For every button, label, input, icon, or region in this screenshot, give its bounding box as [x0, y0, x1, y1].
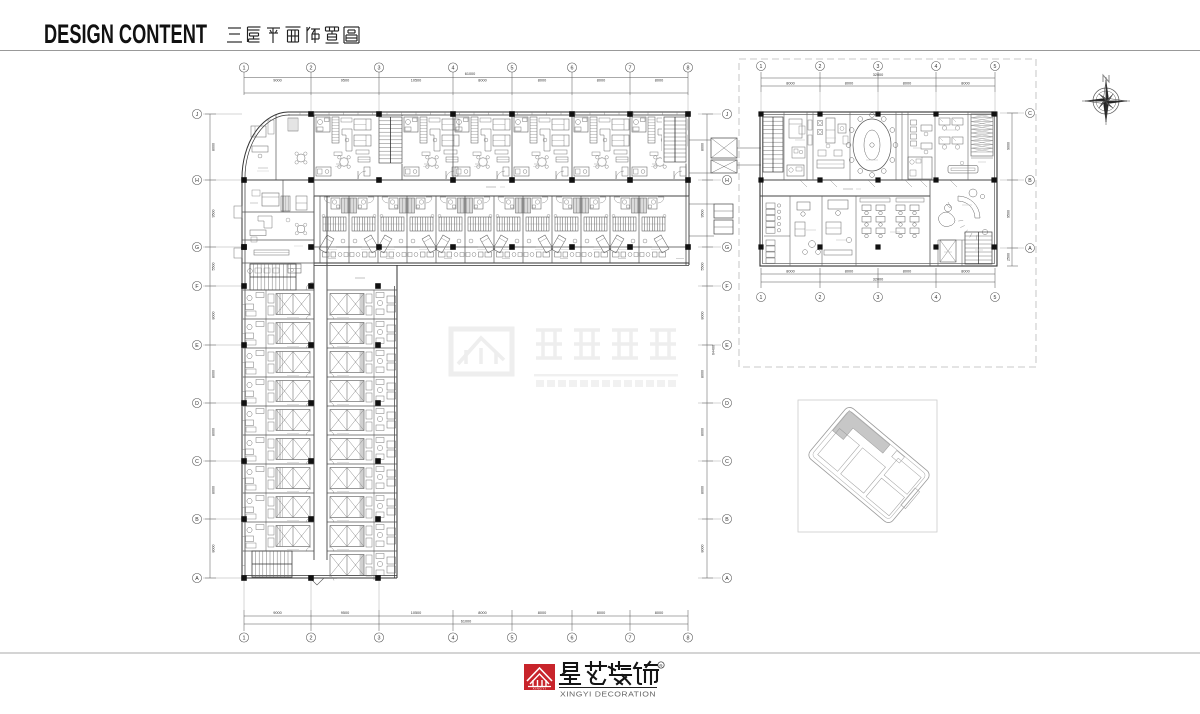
svg-text:2500: 2500 [1007, 253, 1011, 261]
svg-text:9500: 9500 [341, 611, 349, 615]
svg-text:H: H [725, 178, 729, 184]
svg-text:1: 1 [760, 64, 763, 70]
svg-text:8000: 8000 [655, 79, 663, 83]
svg-text:2: 2 [310, 65, 313, 71]
svg-text:J: J [196, 112, 199, 118]
svg-text:D: D [725, 401, 729, 407]
svg-text:10500: 10500 [411, 611, 422, 615]
svg-text:H: H [195, 178, 199, 184]
svg-text:2: 2 [819, 295, 822, 301]
svg-text:32000: 32000 [873, 277, 884, 281]
svg-text:1: 1 [243, 635, 246, 641]
svg-text:2: 2 [310, 635, 313, 641]
svg-text:6: 6 [571, 65, 574, 71]
svg-text:B: B [195, 517, 199, 523]
svg-text:32000: 32000 [873, 73, 884, 77]
svg-text:C: C [195, 459, 199, 465]
svg-text:8000: 8000 [701, 428, 705, 436]
svg-text:3: 3 [378, 65, 381, 71]
svg-text:8000: 8000 [212, 143, 216, 151]
svg-text:7: 7 [629, 635, 632, 641]
svg-text:E: E [195, 343, 199, 349]
svg-text:2: 2 [819, 64, 822, 70]
svg-text:C: C [1028, 111, 1032, 117]
svg-text:9500: 9500 [341, 79, 349, 83]
svg-text:4: 4 [935, 295, 938, 301]
svg-text:J: J [726, 112, 729, 118]
svg-text:1: 1 [243, 65, 246, 71]
svg-text:5500: 5500 [212, 263, 216, 271]
svg-text:E: E [725, 343, 729, 349]
svg-text:B: B [725, 517, 729, 523]
svg-text:5: 5 [994, 64, 997, 70]
svg-text:8000: 8000 [903, 81, 911, 85]
svg-text:B: B [1028, 178, 1032, 184]
svg-text:8000: 8000 [701, 370, 705, 378]
svg-text:D: D [195, 401, 199, 407]
svg-text:8000: 8000 [786, 81, 794, 85]
svg-text:8000: 8000 [597, 79, 605, 83]
svg-text:6: 6 [571, 635, 574, 641]
svg-text:8000: 8000 [212, 545, 216, 553]
svg-text:XINGYI DECORATION: XINGYI DECORATION [560, 690, 656, 699]
svg-text:8000: 8000 [845, 81, 853, 85]
svg-text:DESIGN CONTENT: DESIGN CONTENT [44, 19, 207, 49]
svg-text:8000: 8000 [701, 486, 705, 494]
svg-text:8000: 8000 [845, 269, 853, 273]
svg-text:5: 5 [511, 635, 514, 641]
svg-text:8000: 8000 [478, 611, 486, 615]
svg-text:C: C [725, 459, 729, 465]
svg-text:5: 5 [994, 295, 997, 301]
svg-text:8000: 8000 [212, 428, 216, 436]
svg-text:4: 4 [452, 635, 455, 641]
svg-text:10500: 10500 [411, 79, 422, 83]
svg-text:3: 3 [378, 635, 381, 641]
svg-text:3: 3 [877, 64, 880, 70]
svg-text:8000: 8000 [212, 486, 216, 494]
svg-text:9000: 9000 [273, 611, 281, 615]
svg-text:8000: 8000 [655, 611, 663, 615]
svg-text:8000: 8000 [961, 269, 969, 273]
svg-text:9500: 9500 [1007, 210, 1011, 218]
svg-text:61000: 61000 [461, 619, 472, 623]
svg-text:8000: 8000 [961, 81, 969, 85]
svg-text:8000: 8000 [903, 269, 911, 273]
svg-text:F: F [195, 284, 198, 290]
svg-text:1: 1 [760, 295, 763, 301]
svg-text:8000: 8000 [701, 143, 705, 151]
svg-text:64400: 64400 [712, 345, 716, 355]
svg-text:G: G [725, 245, 729, 251]
svg-text:A: A [1028, 246, 1032, 252]
svg-text:8000: 8000 [701, 312, 705, 320]
svg-text:9000: 9000 [1007, 142, 1011, 150]
svg-text:8000: 8000 [538, 611, 546, 615]
svg-text:8000: 8000 [538, 79, 546, 83]
svg-text:A: A [195, 576, 199, 582]
svg-text:G: G [195, 245, 199, 251]
svg-text:5: 5 [511, 65, 514, 71]
svg-text:4: 4 [452, 65, 455, 71]
svg-text:61000: 61000 [465, 72, 476, 76]
svg-text:A: A [725, 576, 729, 582]
svg-text:8: 8 [687, 635, 690, 641]
svg-text:7: 7 [629, 65, 632, 71]
svg-text:F: F [725, 284, 728, 290]
svg-text:XINGYI: XINGYI [533, 687, 547, 691]
svg-text:8000: 8000 [786, 269, 794, 273]
svg-text:9000: 9000 [273, 79, 281, 83]
svg-text:8: 8 [687, 65, 690, 71]
svg-text:8000: 8000 [701, 545, 705, 553]
svg-text:9500: 9500 [212, 210, 216, 218]
svg-text:8000: 8000 [478, 79, 486, 83]
svg-text:5500: 5500 [701, 263, 705, 271]
svg-text:8000: 8000 [212, 312, 216, 320]
svg-text:8000: 8000 [597, 611, 605, 615]
svg-text:3: 3 [877, 295, 880, 301]
svg-text:4: 4 [935, 64, 938, 70]
svg-text:9500: 9500 [701, 210, 705, 218]
svg-text:8000: 8000 [212, 370, 216, 378]
